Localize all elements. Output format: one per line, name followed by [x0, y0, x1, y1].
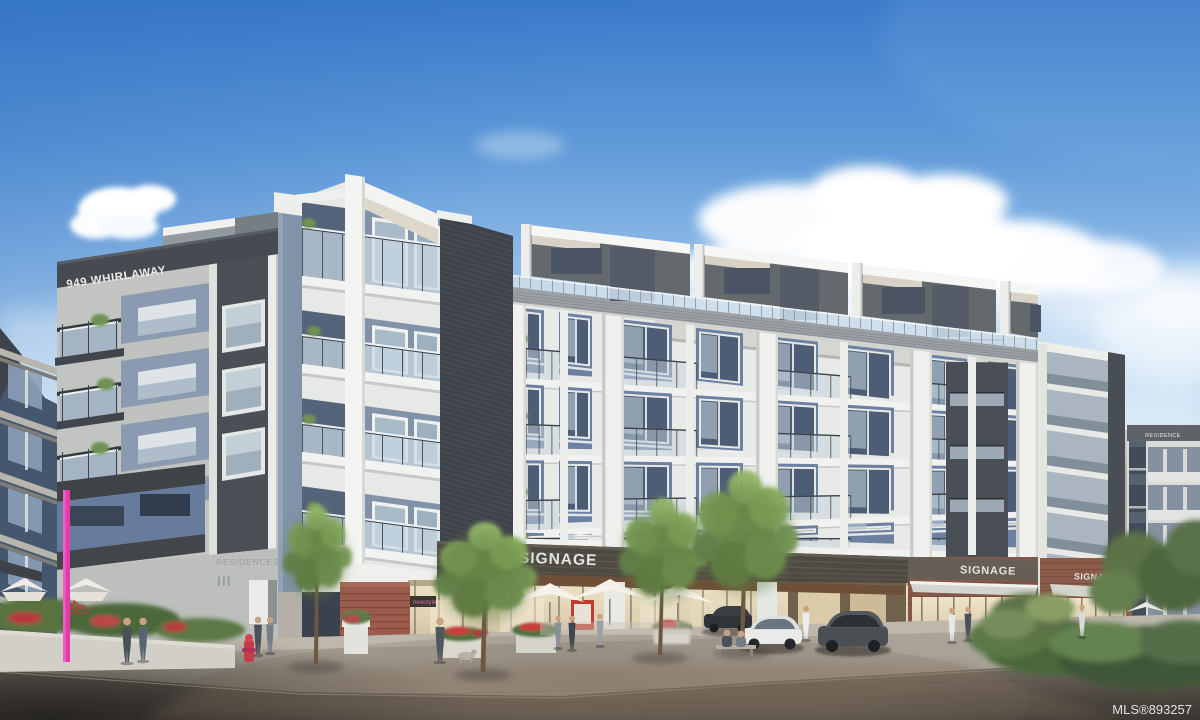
svg-text:newstyle: newstyle	[413, 600, 437, 606]
svg-text:RESIDENCE: RESIDENCE	[1145, 433, 1181, 439]
svg-text:RESIDENCES: RESIDENCES	[216, 557, 279, 567]
svg-text:SIGNAGE: SIGNAGE	[519, 550, 598, 569]
svg-text:III: III	[217, 573, 232, 589]
svg-text:SIGNAGE: SIGNAGE	[960, 564, 1017, 577]
svg-text:MLS®893257: MLS®893257	[1112, 702, 1192, 717]
